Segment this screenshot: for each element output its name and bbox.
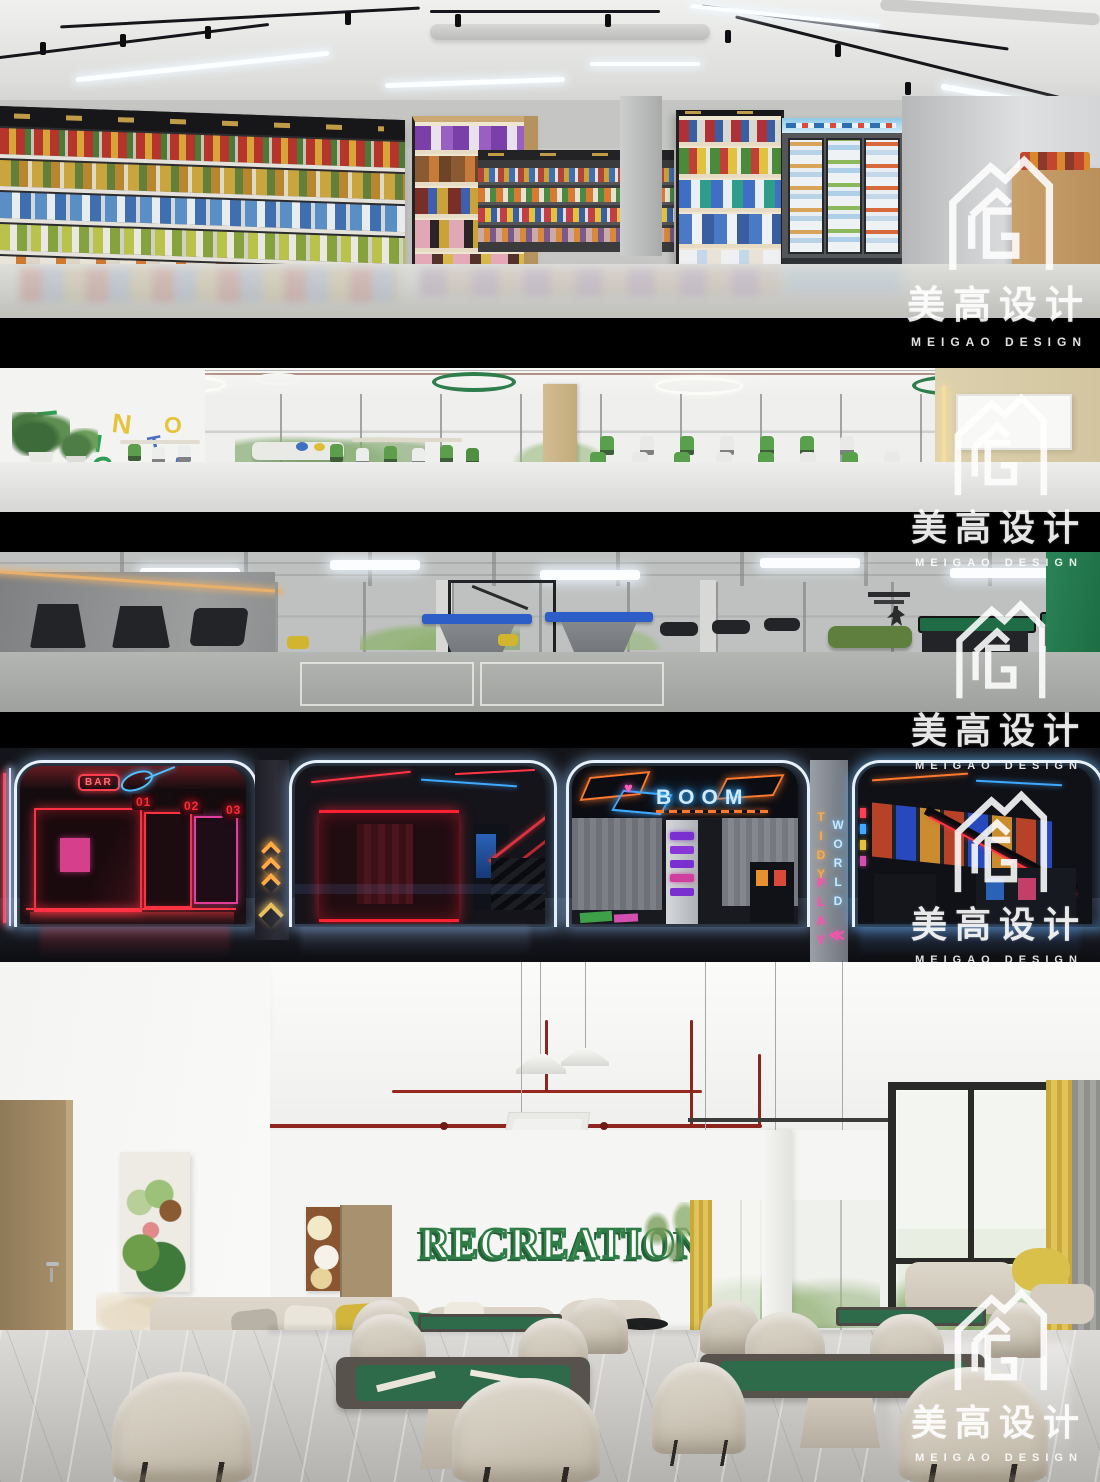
- p2-chair-green: [440, 445, 453, 463]
- p4-column-sign-pink: [670, 874, 694, 882]
- p1-gondola-right-sign-text: [685, 111, 771, 114]
- p2-ring-light: [655, 377, 743, 395]
- watermark-cn-text: 美高设计: [893, 499, 1100, 551]
- watermark-cn-text: 美高设计: [893, 702, 1100, 754]
- p1-product-row: [679, 180, 781, 212]
- p5-chair-legs: [472, 1467, 580, 1482]
- p1-cooler-door: [826, 138, 862, 254]
- p4-arch2-interior: [295, 766, 545, 924]
- p3-led-panel: [330, 560, 420, 570]
- p1-cooler-header-graphics: [786, 123, 896, 128]
- p4-play-mat-green: [580, 911, 613, 923]
- p5-chair-reflection: [920, 1476, 1036, 1482]
- watermark-cn-text: 美高设计: [893, 274, 1100, 329]
- p4-cabinet-screen: [756, 870, 768, 886]
- meigao-logo-icon: [943, 1280, 1055, 1392]
- p2-cushion-blue: [296, 442, 308, 451]
- p5-pendant-lamp: [516, 1054, 566, 1074]
- watermark: 美高设计 MEIGAO DESIGN: [893, 1280, 1100, 1464]
- p2-wood-column: [543, 384, 577, 466]
- p5-chair-legs: [666, 1440, 732, 1466]
- p4-neon-tick: [860, 808, 866, 818]
- p1-product-row: [679, 214, 781, 248]
- p4-ktv-poster: [60, 838, 90, 872]
- p4-booth-number: 01: [132, 794, 155, 810]
- p2-plant: [54, 428, 98, 460]
- p4-neon-word-world: WORLD: [832, 818, 844, 913]
- p2-chair-green: [128, 444, 141, 461]
- p4-ceiling-streak-red: [455, 769, 535, 775]
- p3-pouf-yellow: [498, 634, 518, 646]
- p3-pingpong-top: [422, 614, 532, 624]
- p1-ceiling: [0, 0, 1100, 108]
- p4-arch1-interior: BAR 01 02 03: [20, 766, 246, 924]
- p4-neon-arrow-icon: ≪: [829, 926, 845, 944]
- p4-cabinet-screen: [774, 870, 786, 886]
- p3-weight-rack: [112, 606, 170, 648]
- p5-lamp-cable: [775, 962, 776, 1142]
- p1-spotlight: [605, 14, 611, 27]
- p5-red-pipe-riser: [758, 1054, 761, 1126]
- p1-air-duct: [430, 24, 710, 40]
- p1-pillar: [620, 96, 662, 256]
- p5-door-lock-plate: [50, 1268, 53, 1282]
- p4-ktv-booth: [144, 812, 192, 908]
- p4-ceiling-streak-blue: [421, 779, 517, 788]
- watermark: 美高设计 MEIGAO DESIGN: [893, 782, 1100, 966]
- p3-pilaster: [700, 580, 716, 654]
- p5-chair-reflection: [130, 1474, 240, 1482]
- p4-column-sign-purple: [670, 846, 694, 854]
- p5-pipe-joint: [440, 1122, 448, 1130]
- watermark-en-text: MEIGAO DESIGN: [893, 1452, 1100, 1464]
- p3-weight-rack: [30, 604, 86, 648]
- p4-arch3-interior: ♥ BOOM: [572, 766, 798, 924]
- p3-court-line: [300, 662, 474, 706]
- p4-booth-number: 03: [222, 802, 245, 818]
- p2-wall-letter: N: [110, 410, 133, 439]
- p1-spotlight: [345, 12, 351, 25]
- p3-exercise-bike: [660, 622, 698, 636]
- p2-ring-light-green: [432, 372, 516, 392]
- p4-neon-tick: [860, 856, 866, 866]
- p3-led-panel: [760, 558, 860, 568]
- p1-cooler-door: [788, 138, 824, 254]
- p2-ring-light: [255, 373, 301, 385]
- p1-floor-reflection: [20, 268, 400, 302]
- p3-treadmill: [189, 608, 248, 646]
- meigao-logo-icon: [943, 782, 1055, 894]
- p4-neon-tick: [860, 840, 866, 850]
- p4-floor-red-reflection: [30, 912, 234, 924]
- p2-wall-letter: O: [164, 414, 182, 437]
- p5-abstract-painting: [120, 1152, 190, 1292]
- p5-door-handle: [46, 1262, 59, 1266]
- watermark-en-text: MEIGAO DESIGN: [893, 557, 1100, 569]
- p4-play-mat-pink: [614, 913, 638, 922]
- p2-cushion-yellow: [314, 443, 325, 451]
- p1-floor-reflection: [420, 268, 780, 296]
- p4-bar-neon-sign: BAR: [78, 774, 120, 791]
- p3-pingpong-top: [545, 612, 653, 622]
- p5-lamp-cable: [540, 962, 541, 1054]
- p1-spotlight: [40, 42, 46, 55]
- p4-boom-zigzag: [656, 810, 768, 813]
- p3-led-panel: [950, 568, 1050, 578]
- p1-beverage-cooler: [782, 118, 902, 268]
- p3-cable-machine-beam: [448, 580, 556, 583]
- watermark-en-text: MEIGAO DESIGN: [893, 335, 1100, 349]
- p4-ktv-booth: [194, 816, 238, 904]
- p1-spotlight: [905, 82, 911, 95]
- p4-column-sign-purple: [670, 888, 694, 896]
- p4-back-light-strip: [295, 884, 545, 894]
- meigao-logo-icon: [943, 385, 1055, 497]
- p4-neon-word-tidy: TIDY: [815, 810, 827, 886]
- p1-floor-reflection: [784, 268, 902, 294]
- p2-table: [352, 438, 462, 442]
- p4-ceiling-streak-red: [311, 771, 411, 783]
- p2-chair-white: [178, 445, 191, 462]
- p1-spotlight: [455, 14, 461, 27]
- p4-neon-heart-icon: ♥: [624, 780, 633, 797]
- p4-edge-neon-white: [9, 768, 11, 926]
- watermark-cn-text: 美高设计: [893, 1394, 1100, 1446]
- p4-booth-number: 02: [180, 798, 203, 814]
- p3-led-panel: [540, 570, 640, 580]
- p1-spotlight: [205, 26, 211, 39]
- p3-pouf-yellow: [287, 636, 309, 649]
- p5-red-pipe-riser: [690, 1020, 693, 1126]
- p5-pendant-lamp: [561, 1048, 609, 1066]
- p1-spotlight: [835, 44, 841, 57]
- p3-exercise-bike: [712, 620, 750, 634]
- p1-track-rail: [430, 10, 660, 13]
- p4-neon-tick: [860, 824, 866, 834]
- p4-column-sign-purple: [670, 860, 694, 868]
- p1-led-light: [590, 62, 700, 66]
- watermark-en-text: MEIGAO DESIGN: [893, 760, 1100, 772]
- p4-boom-neon-sign: BOOM: [656, 786, 749, 810]
- meigao-logo-icon: [945, 592, 1053, 700]
- p5-red-pipe: [228, 1124, 762, 1128]
- p2-chair-green: [330, 444, 343, 462]
- p4-ceiling-streak-orange: [872, 773, 968, 782]
- p4-curtain-wall: [572, 818, 662, 910]
- p4-floor-reflection-red: [40, 926, 230, 958]
- p5-lamp-cable: [585, 962, 586, 1048]
- p5-flower-painting: [306, 1207, 340, 1291]
- watermark-cn-text: 美高设计: [893, 896, 1100, 948]
- watermark-en-text: MEIGAO DESIGN: [893, 954, 1100, 966]
- p3-court-line: [480, 662, 664, 706]
- p5-table-pedestal: [800, 1398, 880, 1448]
- p4-floor-neon-line: [26, 908, 236, 910]
- p4-neon-word-play: PLAY: [815, 876, 827, 952]
- p4-floor-reflection-white: [300, 926, 530, 956]
- p1-spotlight: [120, 34, 126, 47]
- meigao-logo-icon: [936, 146, 1062, 272]
- p4-edge-neon-red: [3, 773, 6, 923]
- watermark: 美高设计 MEIGAO DESIGN: [893, 592, 1100, 772]
- p3-exercise-bike: [764, 618, 800, 631]
- p4-column-sign-purple: [670, 832, 694, 840]
- watermark: 美高设计 MEIGAO DESIGN: [893, 146, 1100, 349]
- design-collage: { "watermark": { "cn": "美高设计", "en": "ME…: [0, 0, 1100, 1482]
- p5-pipe-joint: [600, 1122, 608, 1130]
- p1-spotlight: [725, 30, 731, 43]
- p1-product-row: [679, 148, 781, 178]
- p1-product-row: [679, 120, 781, 146]
- watermark: 美高设计 MEIGAO DESIGN: [893, 385, 1100, 569]
